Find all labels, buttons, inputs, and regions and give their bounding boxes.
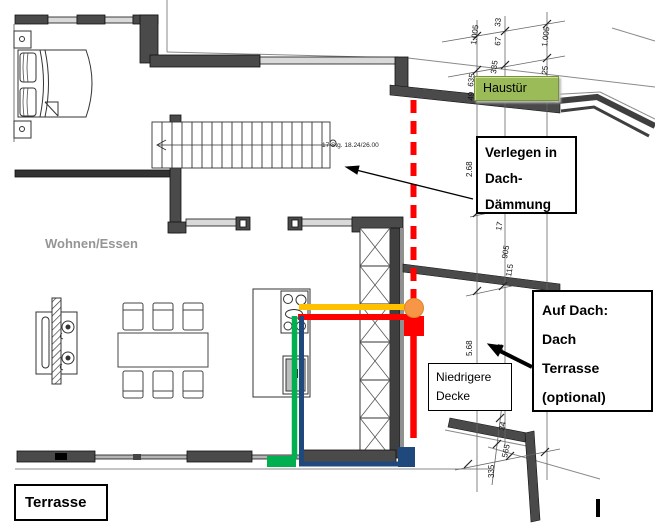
- sideboard: [36, 298, 77, 384]
- verlegen-line1: Verlegen in: [485, 140, 575, 166]
- dim-34: 34: [497, 420, 508, 431]
- dim-67: 67: [493, 36, 503, 46]
- label-verlegen-dach-daemmung: Verlegen in Dach- Dämmung: [476, 136, 577, 214]
- aufdach-line3: Terrasse: [542, 354, 651, 383]
- niedrigere-line2: Decke: [436, 387, 511, 406]
- dining-set: [118, 303, 208, 398]
- label-niedrigere-decke: Niedrigere Decke: [428, 363, 512, 411]
- dim-905: 905: [500, 244, 511, 259]
- dim-33: 33: [493, 17, 503, 27]
- stairs-label: 17 Stg. 18.24/26.00: [322, 142, 379, 149]
- label-auf-dach: Auf Dach: Dach Terrasse (optional): [532, 290, 653, 412]
- dim-1005-b: 1.005: [540, 26, 551, 48]
- label-haustuer: Haustür: [474, 76, 559, 101]
- bed: [14, 31, 92, 138]
- marker-green-box: [267, 456, 296, 467]
- north-wall: [150, 55, 408, 90]
- marker-navy-square: [398, 447, 415, 467]
- kitchen-south-wall: [300, 450, 396, 463]
- tall-cabinet-column: [360, 228, 390, 456]
- terrasse-text: Terrasse: [25, 494, 106, 511]
- room-label: Wohnen/Essen: [45, 236, 138, 251]
- marker-orange-circle: [405, 299, 424, 318]
- dim-17: 17: [494, 220, 505, 231]
- stairs: [152, 122, 336, 168]
- marker-red-square: [404, 316, 424, 336]
- niedrigere-line1: Niedrigere: [436, 368, 511, 387]
- dim-268: 2.68: [465, 161, 474, 177]
- verlegen-line2: Dach-: [485, 166, 575, 192]
- verlegen-line3: Dämmung: [485, 192, 575, 218]
- aufdach-line2: Dach: [542, 325, 651, 354]
- dim-335-bottom: 335: [487, 464, 496, 478]
- aufdach-line4: (optional): [542, 383, 651, 412]
- floor-plan: 49 635 1.005 335 67 33 25 1.005 2.68 17 …: [0, 0, 655, 527]
- mid-left-wall: [15, 170, 172, 177]
- dim-568: 5.68: [465, 340, 474, 356]
- terrace-window-front: [17, 451, 300, 462]
- dim-115: 115: [504, 263, 515, 278]
- kitchen-wall: [390, 228, 404, 458]
- aufdach-line1: Auf Dach:: [542, 296, 651, 325]
- dim-1005-a: 1.005: [469, 24, 480, 46]
- label-terrasse: Terrasse: [14, 484, 108, 521]
- tick-mark: [596, 499, 600, 517]
- haustuer-text: Haustür: [483, 81, 558, 95]
- dim-335-top: 335: [489, 59, 500, 74]
- dim-25: 25: [540, 65, 550, 75]
